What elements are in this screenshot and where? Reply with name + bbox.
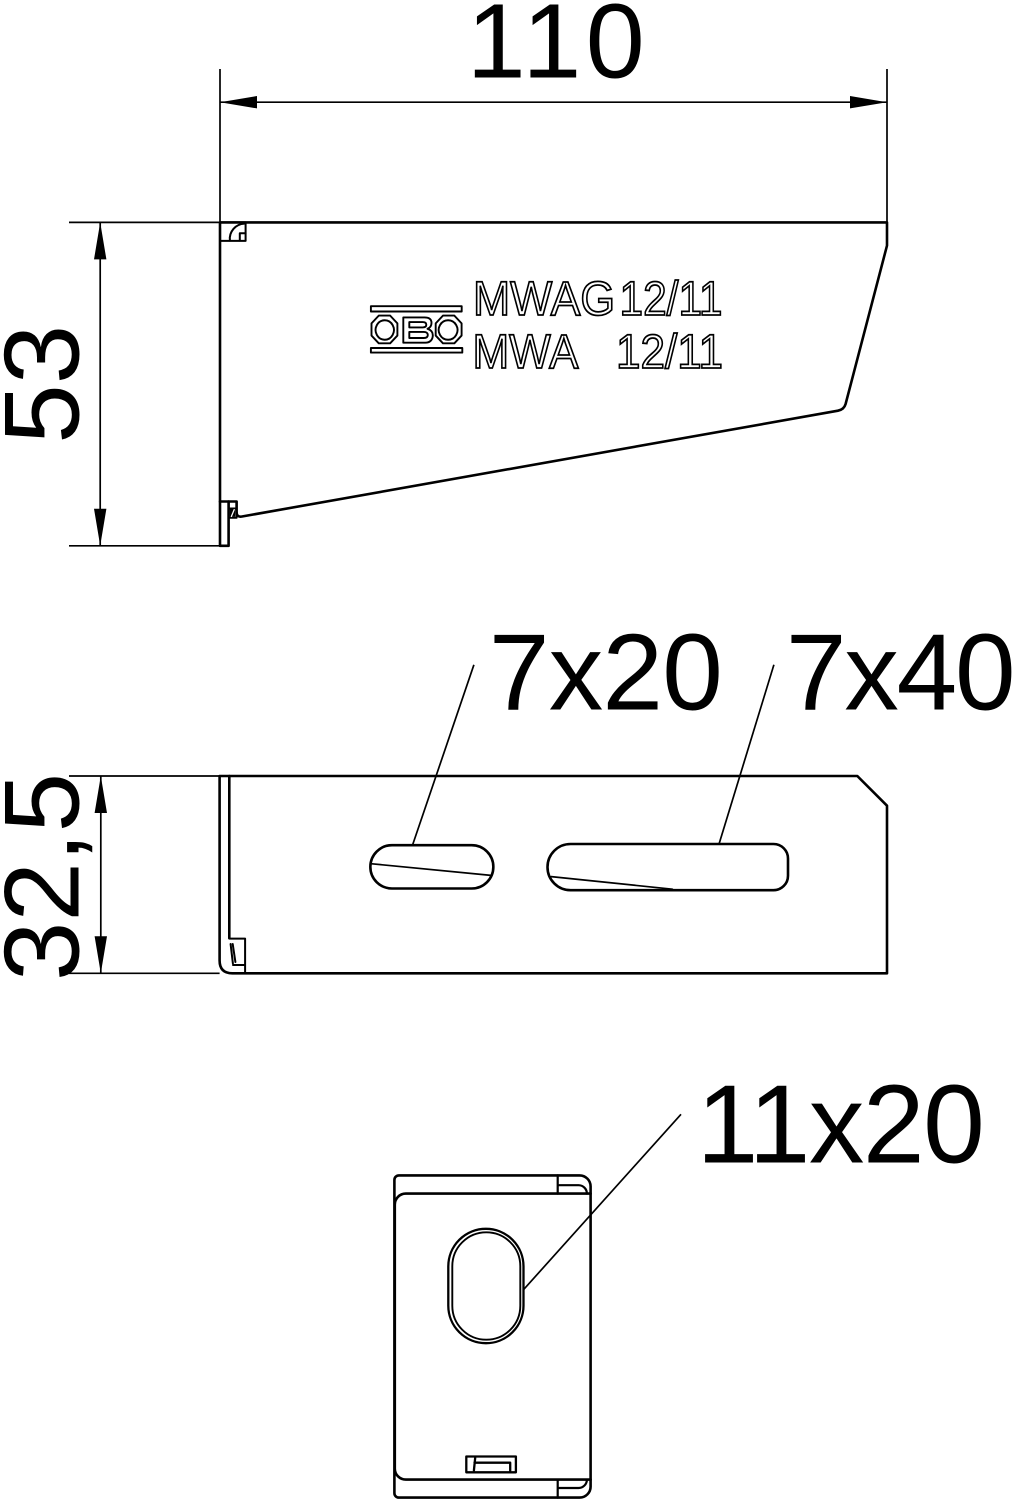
svg-text:MWA: MWA <box>473 326 579 379</box>
svg-text:MWAG: MWAG <box>473 273 615 326</box>
svg-text:12/11: 12/11 <box>616 326 723 379</box>
svg-text:12/11: 12/11 <box>620 273 723 326</box>
svg-text:53: 53 <box>0 325 102 444</box>
svg-text:32,5: 32,5 <box>0 773 102 981</box>
svg-text:7x20: 7x20 <box>489 612 722 734</box>
svg-text:110: 110 <box>467 0 650 101</box>
svg-text:7x40: 7x40 <box>786 612 1014 734</box>
svg-text:11x20: 11x20 <box>697 1063 984 1187</box>
